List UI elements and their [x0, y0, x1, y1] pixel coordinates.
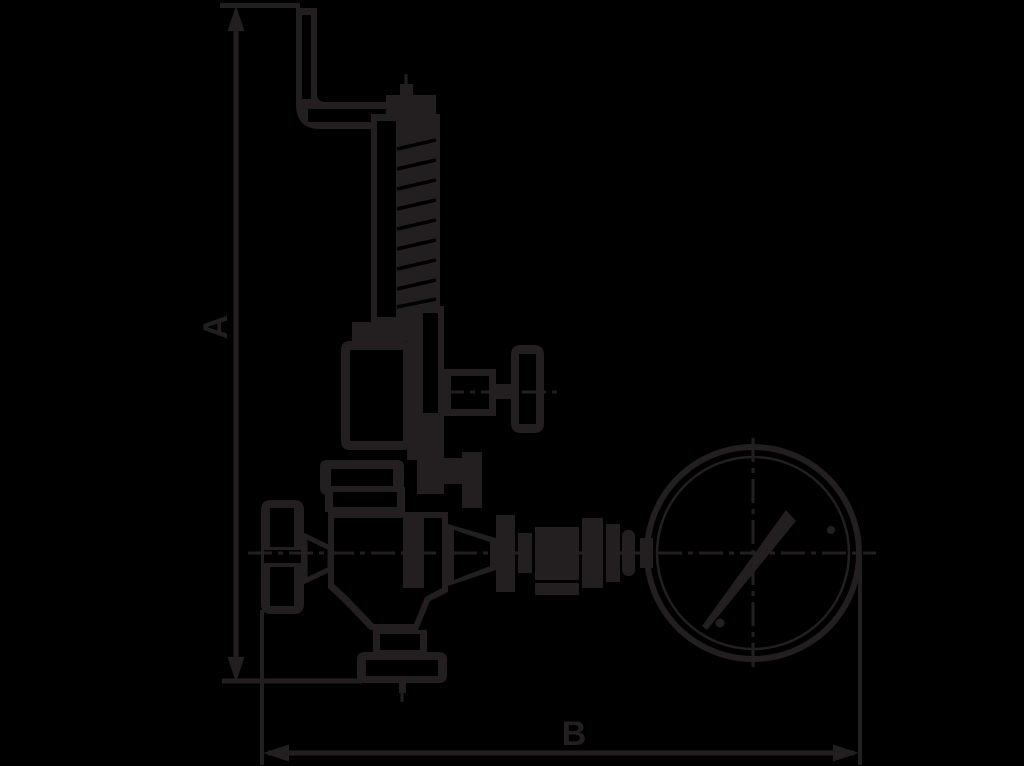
dim-b-arrow-left-icon [263, 745, 289, 762]
stem-cone [305, 536, 330, 581]
right-block-upper [440, 458, 464, 484]
left-handwheel-window-bottom [270, 567, 294, 606]
mid-flange-inner [331, 469, 393, 486]
dim-a-label: A [197, 315, 235, 340]
outlet-flange-inner [366, 660, 438, 676]
right-block-lower [462, 452, 482, 508]
relief-valve [261, 8, 653, 693]
body-stem-column [403, 514, 424, 588]
stem-column-inner [423, 313, 438, 413]
gauge-screw-dot-right [827, 526, 835, 534]
outlet-neck-inner [380, 634, 420, 650]
valve-dimension-drawing: A B [0, 0, 1024, 766]
gauge-screw-dot-left [716, 619, 725, 628]
dim-a-arrow-up-icon [228, 6, 245, 31]
lever-arm-inner [302, 15, 311, 99]
left-handwheel-window-top [270, 508, 294, 547]
gauge-needle [702, 510, 796, 630]
spring-housing-inner [377, 121, 396, 317]
bonnet-inner [350, 350, 403, 441]
dim-b-arrow-right-icon [833, 745, 859, 762]
cap-nut [386, 95, 436, 115]
body-top-band-inner [333, 492, 397, 507]
drawing-canvas: A B [0, 0, 1024, 766]
dim-a-arrow-down-icon [228, 657, 245, 682]
side-handwheel-inner [519, 354, 536, 424]
dim-b-label: B [562, 715, 587, 753]
